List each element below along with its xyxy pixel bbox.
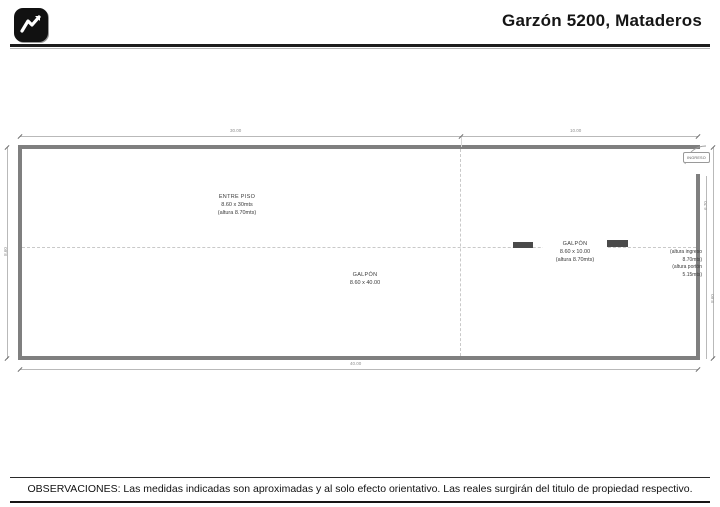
dimension-extension-line — [461, 136, 462, 147]
dim-tick — [711, 356, 716, 361]
dim-label-bottom: 40.00 — [349, 361, 362, 366]
dimension-line-bottom — [20, 369, 698, 370]
dim-tick — [696, 367, 701, 372]
room-size: 8.60 x 10.00 — [545, 248, 605, 256]
wall-bottom — [18, 356, 700, 360]
mezzanine-edge-dashed-line — [460, 149, 461, 356]
dim-label-top-right: 10.00 — [569, 128, 582, 133]
header-divider-shadow — [10, 48, 710, 49]
note-line: 5.15mts) — [630, 272, 702, 280]
height-notes: (altura ingreso 8.70mts) (altura portón … — [630, 249, 702, 279]
note-line: (altura portón — [630, 264, 702, 272]
observaciones-text: OBSERVACIONES: Las medidas indicadas son… — [0, 483, 720, 495]
page: Garzón 5200, Mataderos 30.00 10.00 40.00… — [0, 0, 720, 507]
room-name: GALPÓN — [545, 240, 605, 248]
note-line: (altura ingreso — [630, 249, 702, 257]
brand-logo — [14, 8, 48, 42]
room-label-galpon-right: GALPÓN 8.60 x 10.00 (altura 8.70mts) — [543, 240, 607, 264]
column-bar — [606, 240, 628, 247]
column-bar — [513, 242, 533, 248]
entrance-label: INGRESO — [683, 152, 710, 163]
footer-divider-top — [10, 477, 710, 478]
dim-label-right-outer: 8.60 — [710, 293, 715, 304]
room-name: GALPÓN — [315, 271, 415, 279]
room-label-entre-piso: ENTRE PISO 8.60 x 30mts (altura 8.70mts) — [187, 193, 287, 217]
room-size: 8.60 x 30mts — [187, 201, 287, 209]
dim-tick — [696, 134, 701, 139]
header-divider — [10, 44, 710, 47]
dimension-line-right-outer — [713, 147, 714, 359]
wall-left — [18, 145, 22, 360]
room-size: 8.60 x 40.00 — [315, 279, 415, 287]
room-height: (altura 8.70mts) — [545, 256, 605, 264]
wall-top — [18, 145, 700, 149]
footer-divider-bottom — [10, 501, 710, 503]
note-line: 8.70mts) — [630, 257, 702, 265]
dim-label-top-left: 30.00 — [229, 128, 242, 133]
room-height: (altura 8.70mts) — [187, 209, 287, 217]
dim-tick — [5, 356, 10, 361]
room-label-galpon-main: GALPÓN 8.60 x 40.00 — [315, 271, 415, 287]
page-title: Garzón 5200, Mataderos — [302, 11, 702, 31]
room-name: ENTRE PISO — [187, 193, 287, 201]
dim-label-right-inner: 6.70 — [703, 200, 708, 211]
dimension-line-top — [20, 136, 698, 137]
dim-label-left: 8.60 — [3, 246, 8, 257]
